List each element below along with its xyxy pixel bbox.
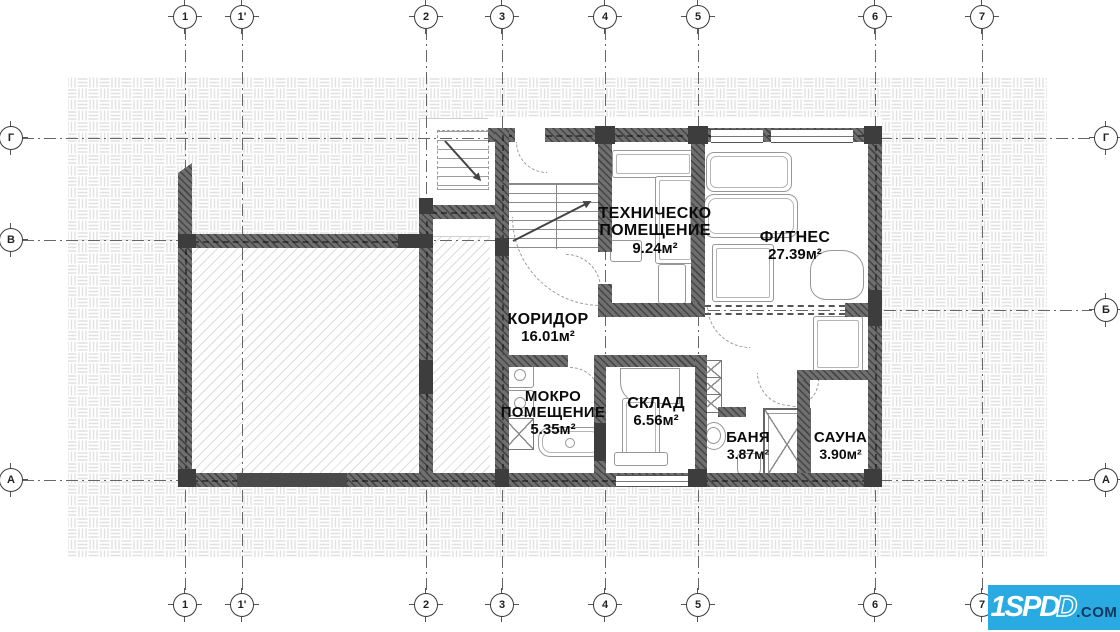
axis-marker-bottom-1p: 1'	[225, 588, 259, 622]
axis-marker-bottom-3: 3	[485, 588, 519, 622]
gym-machine-2	[813, 316, 863, 372]
floor-plan-canvas: ТЕХНИЧЕСКО ПОМЕЩЕНИЕ 9.24м² ФИТНЕС 27.39…	[0, 0, 1120, 632]
room-area: 6.56м²	[606, 412, 706, 430]
wing-wall	[178, 163, 192, 234]
pier-main-se	[864, 469, 882, 487]
pier-main-w	[495, 238, 509, 256]
grid-line-1p	[242, 28, 243, 594]
room-area: 16.01м²	[486, 328, 610, 346]
garage-door	[237, 473, 347, 487]
window-north-2	[771, 129, 853, 143]
room-name: МОКРО ПОМЕЩЕНИЕ	[493, 389, 613, 421]
bath-wall-stub	[718, 407, 746, 417]
room-area: 5.35м²	[493, 421, 613, 439]
garage-west-wall	[178, 234, 192, 487]
room-label-fitness: ФИТНЕС 27.39м²	[730, 229, 860, 264]
pier-main-ne	[864, 126, 882, 144]
room-label-wet: МОКРО ПОМЕЩЕНИЕ 5.35м²	[493, 389, 613, 439]
room-name: ФИТНЕС	[730, 229, 860, 246]
axis-marker-top-3: 3	[485, 0, 519, 34]
sauna-north-wall	[797, 370, 868, 380]
logo-brand-text: 1SPD	[991, 591, 1059, 624]
room-name: ТЕХНИЧЕСКО ПОМЕЩЕНИЕ	[585, 205, 725, 240]
axis-marker-bottom-5: 5	[681, 588, 715, 622]
room-label-tech: ТЕХНИЧЕСКО ПОМЕЩЕНИЕ 9.24м²	[585, 205, 725, 258]
axis-marker-right-a: А	[1089, 463, 1120, 497]
room-name: КОРИДОР	[486, 311, 610, 328]
room-label-corridor: КОРИДОР 16.01м²	[486, 311, 610, 346]
garage-floor	[180, 236, 431, 485]
axis-marker-top-2: 2	[409, 0, 443, 34]
pier-main-e	[868, 290, 882, 326]
treadmill-1	[706, 152, 792, 192]
axis-marker-top-5: 5	[681, 0, 715, 34]
storage-duct-flange	[614, 452, 668, 466]
axis-marker-bottom-6: 6	[858, 588, 892, 622]
pier-garage-nw	[178, 234, 196, 248]
logo-tld-text: .COM	[1076, 604, 1117, 621]
grid-line-7	[982, 28, 983, 594]
axis-b-dashed-line-2	[705, 313, 845, 316]
axis-marker-left-v: В	[0, 223, 28, 257]
axis-marker-right-b: Б	[1089, 293, 1120, 327]
axis-marker-top-4: 4	[588, 0, 622, 34]
room-area: 3.87м²	[708, 446, 788, 463]
axis-b-wall-left	[612, 303, 705, 317]
axis-marker-left-a: А	[0, 463, 28, 497]
axis-marker-left-g: Г	[0, 121, 28, 155]
logo-brand-outline-text: D	[1056, 591, 1075, 624]
axis-marker-bottom-2: 2	[409, 588, 443, 622]
room-area: 9.24м²	[585, 240, 725, 258]
pier-main-n1	[595, 126, 615, 144]
pier-main-s	[688, 469, 707, 487]
wet-room-north-wall	[495, 355, 568, 367]
room-label-bath: БАНЯ 3.87м²	[708, 430, 788, 463]
room-name: СКЛАД	[606, 395, 706, 412]
entry-door-opening	[515, 128, 545, 142]
pier-main-n2	[688, 126, 708, 144]
watermark-logo: 1SPDD.COM	[988, 585, 1120, 630]
pier-garage-ne	[415, 234, 433, 248]
storage-north-wall	[594, 355, 700, 367]
room-label-storage: СКЛАД 6.56м²	[606, 395, 706, 430]
room-name: БАНЯ	[708, 430, 788, 446]
hvac-duct-drop	[658, 264, 686, 304]
hvac-duct-horizontal	[612, 150, 694, 178]
room-area: 3.90м²	[798, 446, 883, 463]
pier-garage-sw	[178, 469, 196, 487]
axis-marker-top-7: 7	[965, 0, 999, 34]
room-label-sauna: САУНА 3.90м²	[798, 430, 883, 463]
axis-marker-bottom-4: 4	[588, 588, 622, 622]
room-area: 27.39м²	[730, 246, 860, 264]
room-name: САУНА	[798, 430, 883, 446]
pier-strip-n	[419, 198, 433, 214]
garage-north-wall	[178, 234, 433, 248]
axis-marker-right-g: Г	[1089, 121, 1120, 155]
axis-b-wall-right	[845, 303, 868, 317]
pier-garage-e	[419, 360, 433, 394]
axis-b-dashed-line-1	[705, 305, 845, 308]
axis-marker-top-1: 1	[168, 0, 202, 34]
window-north-1	[711, 129, 763, 143]
axis-marker-bottom-1: 1	[168, 588, 202, 622]
axis-marker-top-1p: 1'	[225, 0, 259, 34]
pier-main-sw	[495, 469, 509, 487]
axis-marker-top-6: 6	[858, 0, 892, 34]
